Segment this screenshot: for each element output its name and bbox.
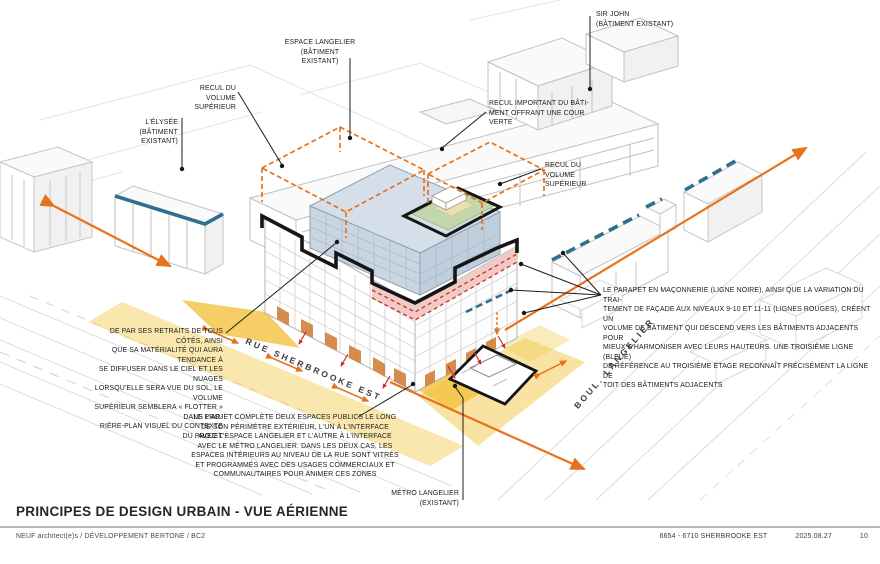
callout-espace-langelier: ESPACE LANGELIER (BÂTIMENT EXISTANT) xyxy=(282,38,358,67)
callout-metro-langelier: MÉTRO LANGELIER (EXISTANT) xyxy=(385,489,459,508)
callout-sir-john: SIR JOHN (BÂTIMENT EXISTANT) xyxy=(596,10,706,29)
callout-recul-volume-superieur-left: RECUL DU VOLUME SUPÉRIEUR xyxy=(190,84,236,113)
footer-date: 2025.08.27 xyxy=(795,533,832,540)
callout-espaces-publics-note: LE PROJET COMPLÈTE DEUX ESPACES PUBLICS … xyxy=(180,413,410,480)
callout-elysee: L'ÉLYSÉE (BÂTIMENT EXISTANT) xyxy=(132,118,178,147)
title-rule xyxy=(0,526,880,528)
footer-meta: 6654 - 6710 SHERBROOKE EST 2025.08.27 10 xyxy=(660,533,868,540)
callout-recul-volume-superieur-right: RECUL DU VOLUME SUPÉRIEUR xyxy=(545,161,605,190)
context-building-far-left xyxy=(0,147,92,252)
footer-page-number: 10 xyxy=(860,533,868,540)
callout-parapet-note: LE PARAPET EN MAÇONNERIE (LIGNE NOIRE), … xyxy=(603,286,879,391)
footer-project-address: 6654 - 6710 SHERBROOKE EST xyxy=(660,533,768,540)
callout-recul-important: RECUL IMPORTANT DU BÂTI- MENT OFFRANT UN… xyxy=(489,99,601,128)
page-title: PRINCIPES DE DESIGN URBAIN - VUE AÉRIENN… xyxy=(16,504,348,519)
slide: SIR JOHN (BÂTIMENT EXISTANT) ESPACE LANG… xyxy=(0,0,880,564)
footer-credits: NEUF architect(e)s / DÉVELOPPEMENT BERTO… xyxy=(16,533,205,540)
